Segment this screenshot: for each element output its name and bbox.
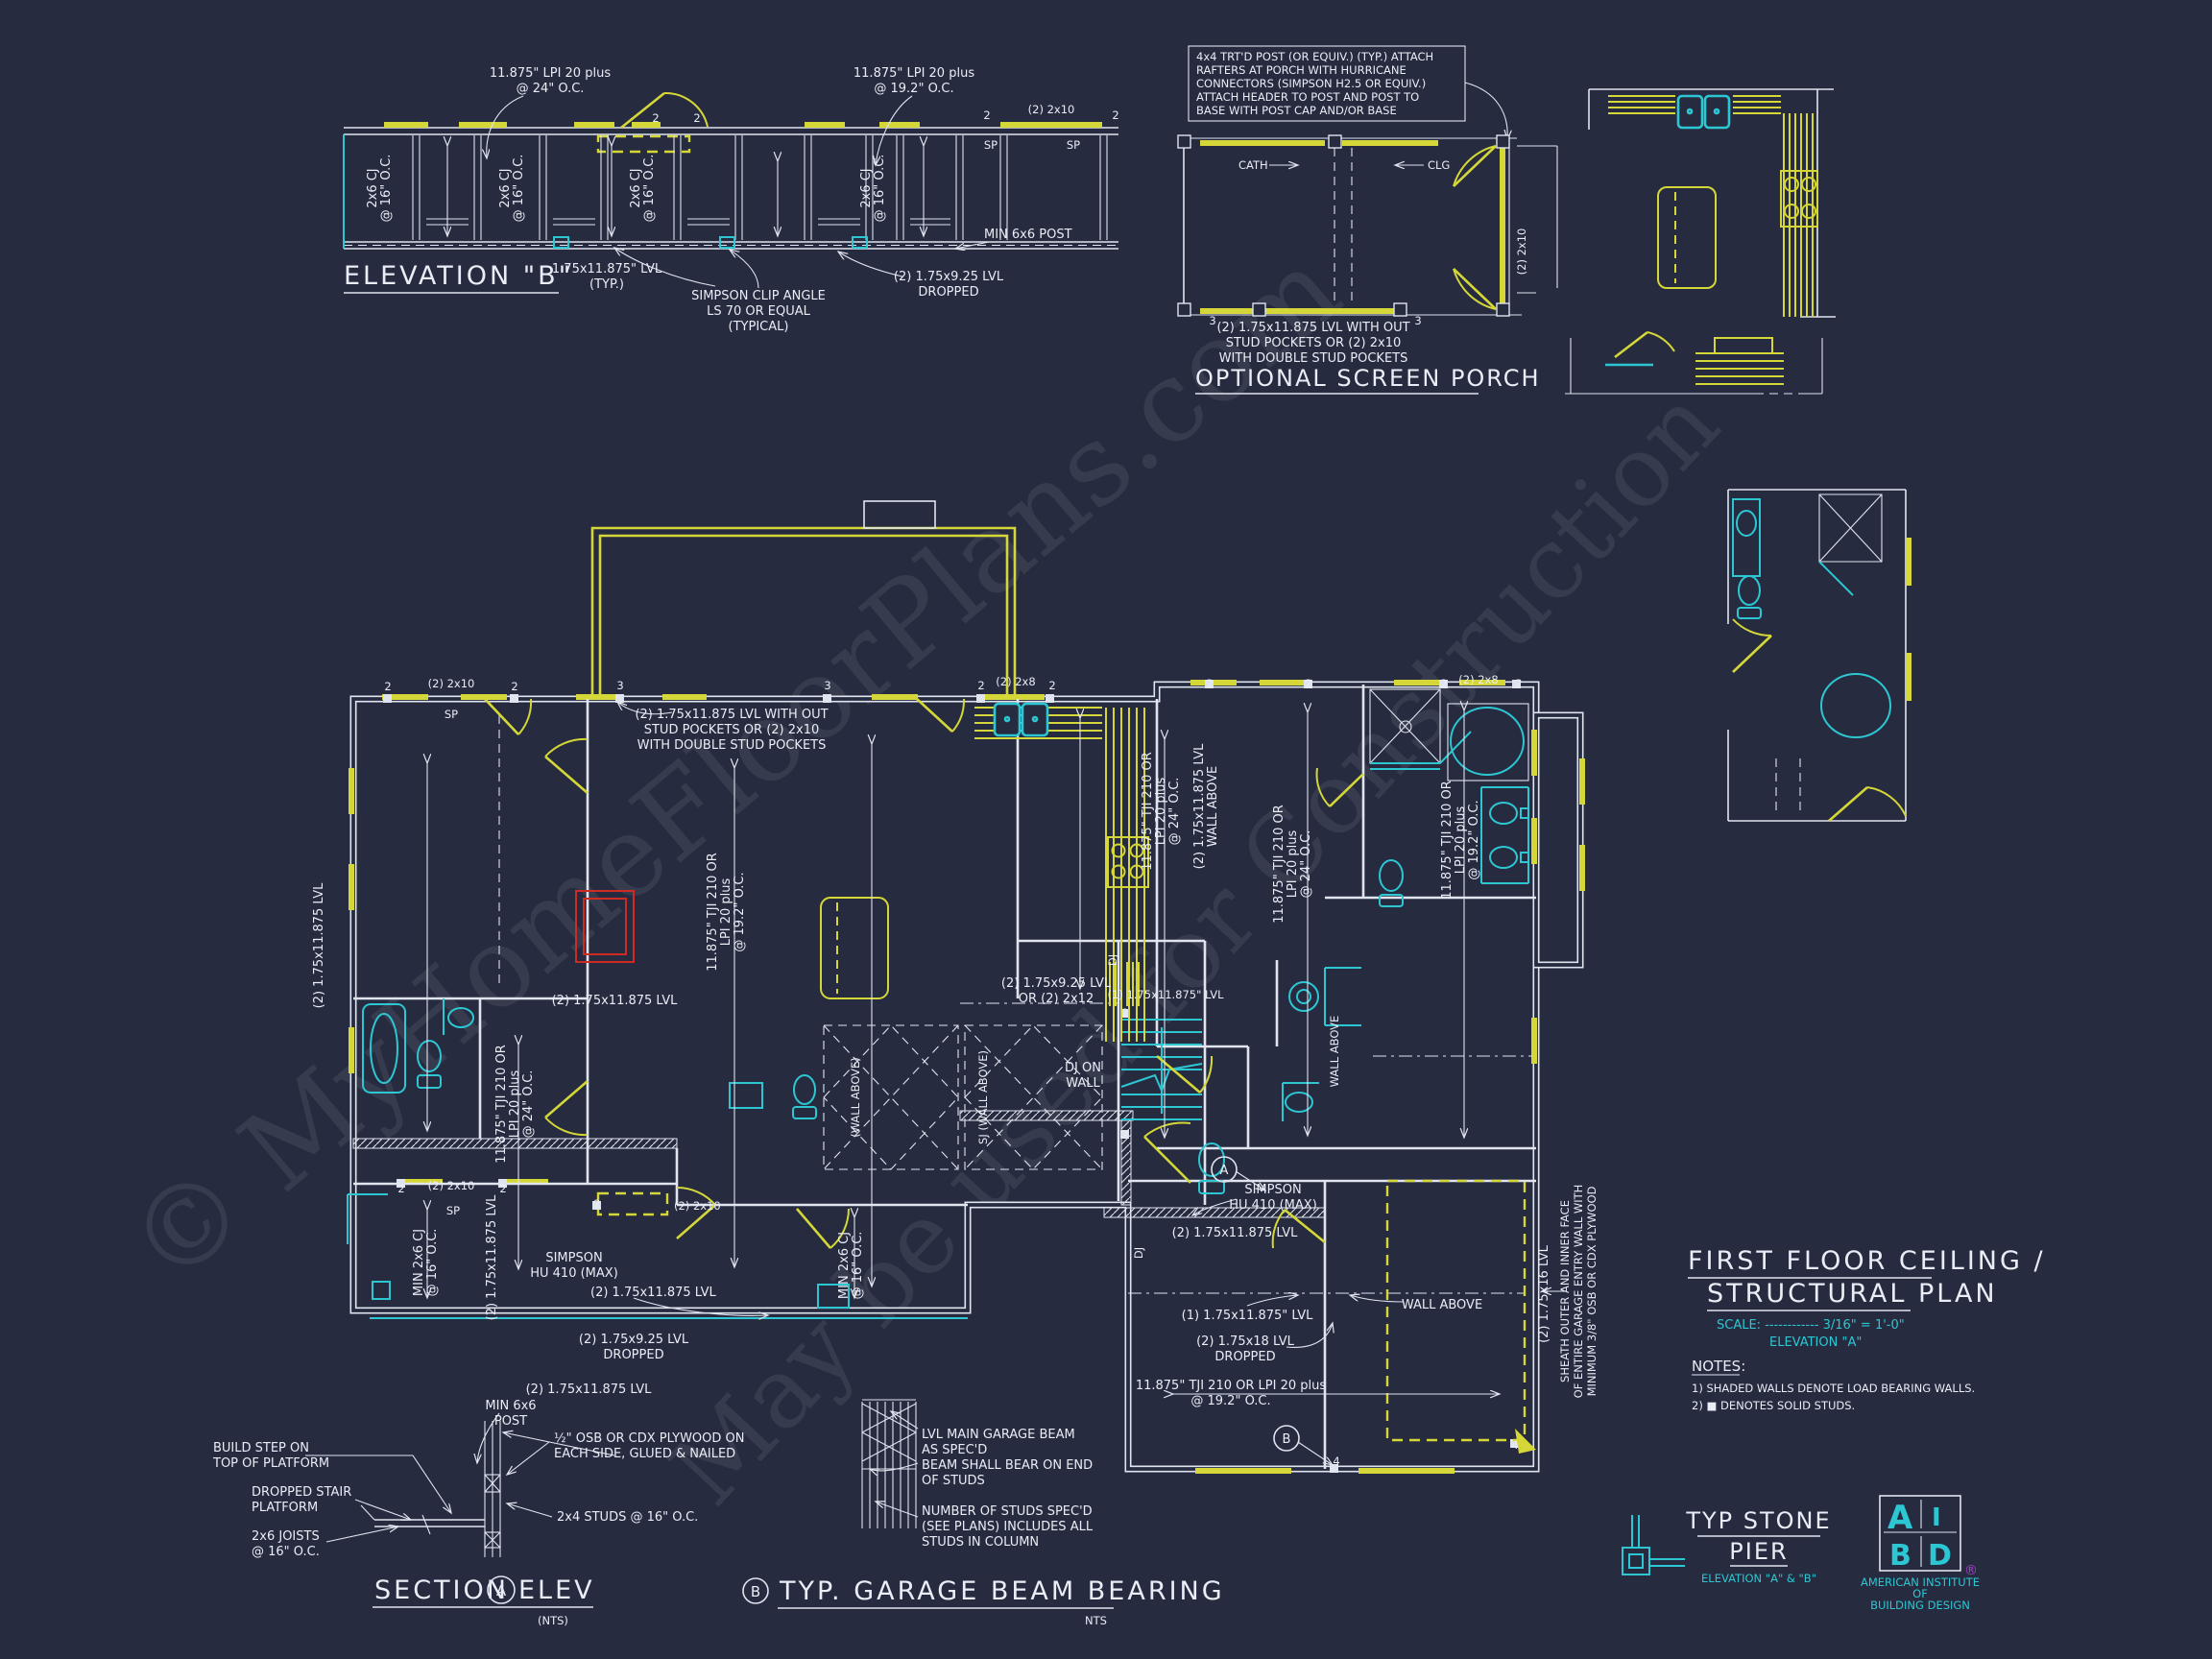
pier-icon <box>1623 1515 1685 1575</box>
lvl-typ-label: (TYP.) <box>589 277 624 292</box>
clg-label: CLG <box>1428 158 1450 172</box>
ceiling-joist-label: 2x6 CJ <box>859 168 874 207</box>
ceiling-joist-label: @ 16" O.C. <box>512 155 526 223</box>
aibd-logo: A I B D ® AMERICAN INSTITUTE OF BUILDING… <box>1861 1496 1980 1612</box>
lvl-label: DROPPED <box>1214 1350 1275 1364</box>
screen-porch-title: OPTIONAL SCREEN PORCH <box>1195 365 1541 392</box>
cj-label: MIN 2x6 CJ <box>412 1229 426 1296</box>
dropped-platform-note: DROPPED STAIR <box>252 1485 351 1500</box>
joist-label: 11.875" TJI 210 OR <box>706 853 720 972</box>
sheath-note: MINIMUM 3/8" OSB OR CDX PLYWOOD <box>1585 1186 1599 1396</box>
island <box>821 898 888 998</box>
simpson-label: SIMPSON <box>545 1251 602 1265</box>
ceiling-joist-label: 2x6 CJ <box>366 168 380 207</box>
elevation-b-lpi24-label: 11.875" LPI 20 plus <box>490 66 611 81</box>
sj-label: (WALL ABOVE) <box>849 1057 862 1138</box>
stud-marker: 3 <box>824 679 830 692</box>
header-label: (2) 2x10 <box>428 1179 475 1192</box>
sheet-title: FIRST FLOOR CEILING / <box>1688 1246 2046 1276</box>
lvl-note: WITH DOUBLE STUD POCKETS <box>637 738 827 753</box>
porch-note: BASE WITH POST CAP AND/OR BASE <box>1196 104 1397 117</box>
bearing-note: OF STUDS <box>922 1474 985 1488</box>
dropped-lvl-label: DROPPED <box>918 285 978 300</box>
stud-count-note: (SEE PLANS) INCLUDES ALL <box>922 1520 1094 1534</box>
lvl-label: (2) 1.75x9.25 LVL <box>1001 976 1112 991</box>
stone-pier-subtitle: ELEVATION "A" & "B" <box>1701 1572 1816 1585</box>
ceiling-joist-label: 2x6 CJ <box>629 168 643 207</box>
wall-above-label: WALL ABOVE <box>1328 1016 1341 1088</box>
elevation-b-detail: 11.875" LPI 20 plus @ 24" O.C. 11.875" L… <box>344 66 1119 334</box>
joist-label: LPI 20 plus <box>719 878 733 946</box>
aibd-letter-b: B <box>1889 1539 1911 1573</box>
lvl-label: DROPPED <box>603 1348 663 1362</box>
header-label: (2) 2x8 <box>996 675 1035 688</box>
build-step-note: TOP OF PLATFORM <box>212 1456 329 1471</box>
joist-label: LPI 20 plus <box>1286 829 1300 898</box>
joist-label: 11.875" TJI 210 OR <box>1440 781 1455 900</box>
dj-label: DJ <box>1132 1247 1145 1259</box>
sj-label: SJ (WALL ABOVE) <box>976 1050 990 1144</box>
sp-marker: SP <box>1067 138 1080 152</box>
nts-label: (NTS) <box>538 1614 568 1627</box>
elevation-label: ELEVATION "A" <box>1769 1335 1862 1350</box>
simpson-label: HU 410 (MAX) <box>1229 1198 1317 1213</box>
joist-label: @ 24" O.C. <box>521 1070 536 1139</box>
dj-label: DJ <box>1106 954 1119 966</box>
stud-count-marker: 2 <box>983 108 990 122</box>
header-label: (2) 2x10 <box>1028 103 1075 116</box>
hall-bath-fixtures <box>730 1075 816 1118</box>
porch-header-label: (2) 2x10 <box>1515 228 1528 276</box>
lvl-label: (2) 1.75x11.875 LVL <box>312 882 326 1009</box>
elevation-b-title: ELEVATION "B" <box>344 261 573 291</box>
joist-label: @ 19.2" O.C. <box>1467 800 1481 879</box>
lvl-label: (2) 1.75x11.875 LVL <box>526 1382 653 1397</box>
post-label: MIN 6x6 <box>485 1399 536 1413</box>
lvl-wall-above: WALL ABOVE <box>1206 766 1220 847</box>
blueprint-sheet: © MyHomeFloorPlans.com May be used for C… <box>0 0 2212 1659</box>
elevation-b-lpi192-label: 11.875" LPI 20 plus <box>854 66 974 81</box>
porch-note: 4x4 TRT'D POST (OR EQUIV.) (TYP.) ATTACH <box>1196 50 1433 63</box>
osb-note: ½" OSB OR CDX PLYWOOD ON <box>554 1431 745 1446</box>
stud-count-marker: 3 <box>1209 314 1215 327</box>
porch-lvl-note: (2) 1.75x11.875 LVL WITH OUT <box>1216 321 1409 335</box>
beam-note: AS SPEC'D <box>922 1443 987 1457</box>
porch-lvl-note: STUD POCKETS OR (2) 2x10 <box>1226 336 1402 350</box>
section-callout: A <box>496 1582 507 1599</box>
simpson-label: HU 410 (MAX) <box>530 1266 618 1281</box>
callout-a: A <box>1220 1164 1229 1178</box>
sheet-title: STRUCTURAL PLAN <box>1707 1279 1998 1309</box>
ceiling-joist-label: 2x6 CJ <box>498 168 513 207</box>
cj-label: @ 16" O.C. <box>425 1229 440 1297</box>
stud-marker: 2 <box>1121 1128 1128 1142</box>
joists-note: @ 16" O.C. <box>252 1545 320 1559</box>
stone-pier-title: TYP STONE <box>1685 1507 1831 1534</box>
cath-label: CATH <box>1238 158 1268 172</box>
screen-porch-detail: 4x4 TRT'D POST (OR EQUIV.) (TYP.) ATTACH… <box>1178 46 1557 394</box>
header-label: (2) 2x10 <box>428 677 475 690</box>
elevation-b-lpi192-label: @ 19.2" O.C. <box>874 82 953 96</box>
joist-label: @ 19.2" O.C. <box>1190 1394 1270 1408</box>
post-label: POST <box>494 1414 527 1429</box>
joists-note: 2x6 JOISTS <box>252 1529 320 1544</box>
stone-pier-detail: TYP STONE PIER ELEVATION "A" & "B" <box>1623 1507 1832 1585</box>
stud-marker: 2 <box>1121 1006 1128 1020</box>
aibd-letter-d: D <box>1928 1539 1952 1573</box>
stud-marker: 2 <box>511 680 517 693</box>
nts-label: NTS <box>1085 1614 1107 1627</box>
joist-label: 11.875" TJI 210 OR LPI 20 plus <box>1136 1379 1327 1393</box>
lvl-label: (2) 1.75x11.875 LVL <box>485 1194 499 1321</box>
header-label: (2) 2x8 <box>1458 673 1498 686</box>
porch-note: ATTACH HEADER TO POST AND POST TO <box>1196 90 1419 104</box>
section-a-detail: BUILD STEP ON TOP OF PLATFORM DROPPED ST… <box>212 1421 745 1627</box>
simpson-clip-label: SIMPSON CLIP ANGLE <box>691 289 826 303</box>
joist-label: 11.875" TJI 210 OR <box>1141 752 1155 871</box>
stud-marker: 2 <box>1048 679 1055 692</box>
stud-marker: 2 <box>1305 677 1311 690</box>
sp-marker: SP <box>445 708 458 721</box>
stud-marker: 2 <box>1515 677 1522 690</box>
dropped-platform-note: PLATFORM <box>252 1501 318 1515</box>
sp-marker: SP <box>984 138 998 152</box>
osb-note: EACH SIDE, GLUED & NAILED <box>554 1447 735 1461</box>
stud-marker: 2 <box>977 679 984 692</box>
elevation-b-lpi24-label: @ 24" O.C. <box>517 82 585 96</box>
porch-lvl-note: WITH DOUBLE STUD POCKETS <box>1219 351 1408 366</box>
joist-label: @ 24" O.C. <box>1167 778 1182 846</box>
dj-on-wall: WALL <box>1066 1076 1100 1091</box>
stud-marker: 4 <box>1511 1438 1518 1452</box>
stud-marker: 2 <box>384 680 391 693</box>
lvl-label: OR (2) 2x12 <box>1019 992 1094 1006</box>
sp-marker: SP <box>446 1204 460 1217</box>
joist-label: 11.875" TJI 210 OR <box>1272 805 1286 924</box>
joist-label: @ 24" O.C. <box>1299 830 1313 899</box>
title-block: FIRST FLOOR CEILING / STRUCTURAL PLAN SC… <box>1688 1246 2046 1412</box>
lvl-label: (1) 1.75x11.875" LVL <box>1108 988 1225 1001</box>
lvl-label: (2) 1.75x18 LVL <box>1196 1334 1295 1349</box>
lvl-label: (1) 1.75x11.875" LVL <box>1182 1309 1313 1323</box>
aibd-org-name: BUILDING DESIGN <box>1870 1599 1970 1612</box>
stud-count-marker: 3 <box>1414 314 1421 327</box>
header-label: (2) 2x10 <box>674 1199 721 1213</box>
porch-note: RAFTERS AT PORCH WITH HURRICANE <box>1196 63 1407 77</box>
stone-pier-title: PIER <box>1729 1538 1788 1565</box>
stud-count-marker: 2 <box>652 111 659 125</box>
stud-marker: 2 <box>1440 677 1447 690</box>
dj-on-wall: DJ ON <box>1065 1061 1101 1075</box>
notes-title: NOTES: <box>1692 1358 1745 1375</box>
post-label: MIN 6x6 POST <box>984 228 1072 242</box>
simpson-clip-label: (TYPICAL) <box>729 320 789 334</box>
cj-label: @ 16" O.C. <box>851 1232 865 1300</box>
lvl-label: (2) 1.75x11.875 LVL <box>552 994 679 1008</box>
sheath-note: OF ENTIRE GARAGE ENTRY WALL WITH <box>1572 1185 1585 1399</box>
lvl-label: (2) 1.75x9.25 LVL <box>579 1333 689 1347</box>
joist-label: LPI 20 plus <box>1154 777 1168 845</box>
build-step-note: BUILD STEP ON <box>213 1441 309 1455</box>
stud-marker: 3 <box>616 679 623 692</box>
note-1: 1) SHADED WALLS DENOTE LOAD BEARING WALL… <box>1692 1382 1975 1395</box>
kitchen-detail <box>1565 89 1836 394</box>
studs-note: 2x4 STUDS @ 16" O.C. <box>557 1510 698 1525</box>
ceiling-joist-label: @ 16" O.C. <box>642 155 657 223</box>
ceiling-joist-label: @ 16" O.C. <box>379 155 394 223</box>
porch-note: CONNECTORS (SIMPSON H2.5 OR EQUIV.) <box>1196 77 1426 90</box>
lvl-label: (2) 1.75x16 LVL <box>1537 1244 1551 1343</box>
detail-callout: B <box>751 1583 760 1600</box>
simpson-label: SIMPSON <box>1244 1183 1301 1197</box>
joist-label: @ 19.2" O.C. <box>733 872 747 951</box>
stud-marker: 2 <box>593 1197 600 1211</box>
section-title: SECTION <box>374 1575 509 1605</box>
lvl-label: (2) 1.75x11.875 LVL <box>1172 1226 1299 1240</box>
garage-beam-title: TYP. GARAGE BEAM BEARING <box>779 1576 1225 1606</box>
dropped-lvl-label: (2) 1.75x9.25 LVL <box>894 270 1004 284</box>
stud-marker: 2 <box>1206 677 1213 690</box>
aibd-letter-a: A <box>1887 1499 1913 1537</box>
aibd-letter-i: I <box>1932 1503 1941 1532</box>
cj-label: MIN 2x6 CJ <box>837 1232 852 1299</box>
ceiling-joist-label: @ 16" O.C. <box>873 155 887 223</box>
callout-b: B <box>1283 1432 1291 1447</box>
stud-count-marker: 2 <box>693 111 700 125</box>
lvl-label: (2) 1.75x11.875 LVL <box>590 1286 717 1300</box>
stud-marker: 2 <box>397 1182 404 1195</box>
note-2: 2) ■ DENOTES SOLID STUDS. <box>1692 1399 1855 1412</box>
lvl-note: STUD POCKETS OR (2) 2x10 <box>644 723 820 737</box>
lvl-typ-label: 1.75x11.875" LVL <box>552 262 662 276</box>
stud-count-note: NUMBER OF STUDS SPEC'D <box>922 1504 1093 1519</box>
stud-count-marker: 2 <box>1112 108 1118 122</box>
sheath-note: SHEATH OUTER AND INNER FACE <box>1558 1200 1572 1382</box>
wall-above-label: WALL ABOVE <box>1402 1298 1482 1312</box>
simpson-clip-label: LS 70 OR EQUAL <box>707 304 811 319</box>
joist-label: LPI 20 plus <box>508 1070 522 1138</box>
joist-label: LPI 20 plus <box>1454 805 1468 874</box>
section-title: ELEV <box>518 1575 595 1605</box>
bearing-note: BEAM SHALL BEAR ON END <box>922 1458 1093 1473</box>
stud-count-note: STUDS IN COLUMN <box>922 1535 1039 1550</box>
bath-detail <box>1728 490 1909 821</box>
beam-note: LVL MAIN GARAGE BEAM <box>922 1428 1075 1442</box>
stud-marker: 2 <box>499 1182 506 1195</box>
stud-marker: 4 <box>1333 1455 1339 1468</box>
lvl-note: (2) 1.75x11.875 LVL WITH OUT <box>635 708 828 722</box>
lvl-wall-above: (2) 1.75x11.875 LVL <box>1192 743 1207 870</box>
joist-label: 11.875" TJI 210 OR <box>494 1045 509 1164</box>
scale-label: SCALE: ------------ 3/16" = 1'-0" <box>1717 1318 1905 1333</box>
